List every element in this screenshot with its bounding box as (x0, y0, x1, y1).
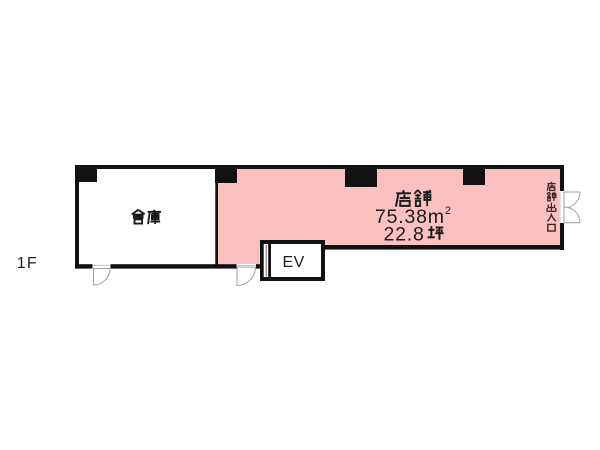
svg-text:22.8: 22.8 (384, 223, 425, 245)
svg-text:1F: 1F (17, 255, 38, 272)
svg-text:EV: EV (283, 254, 305, 271)
